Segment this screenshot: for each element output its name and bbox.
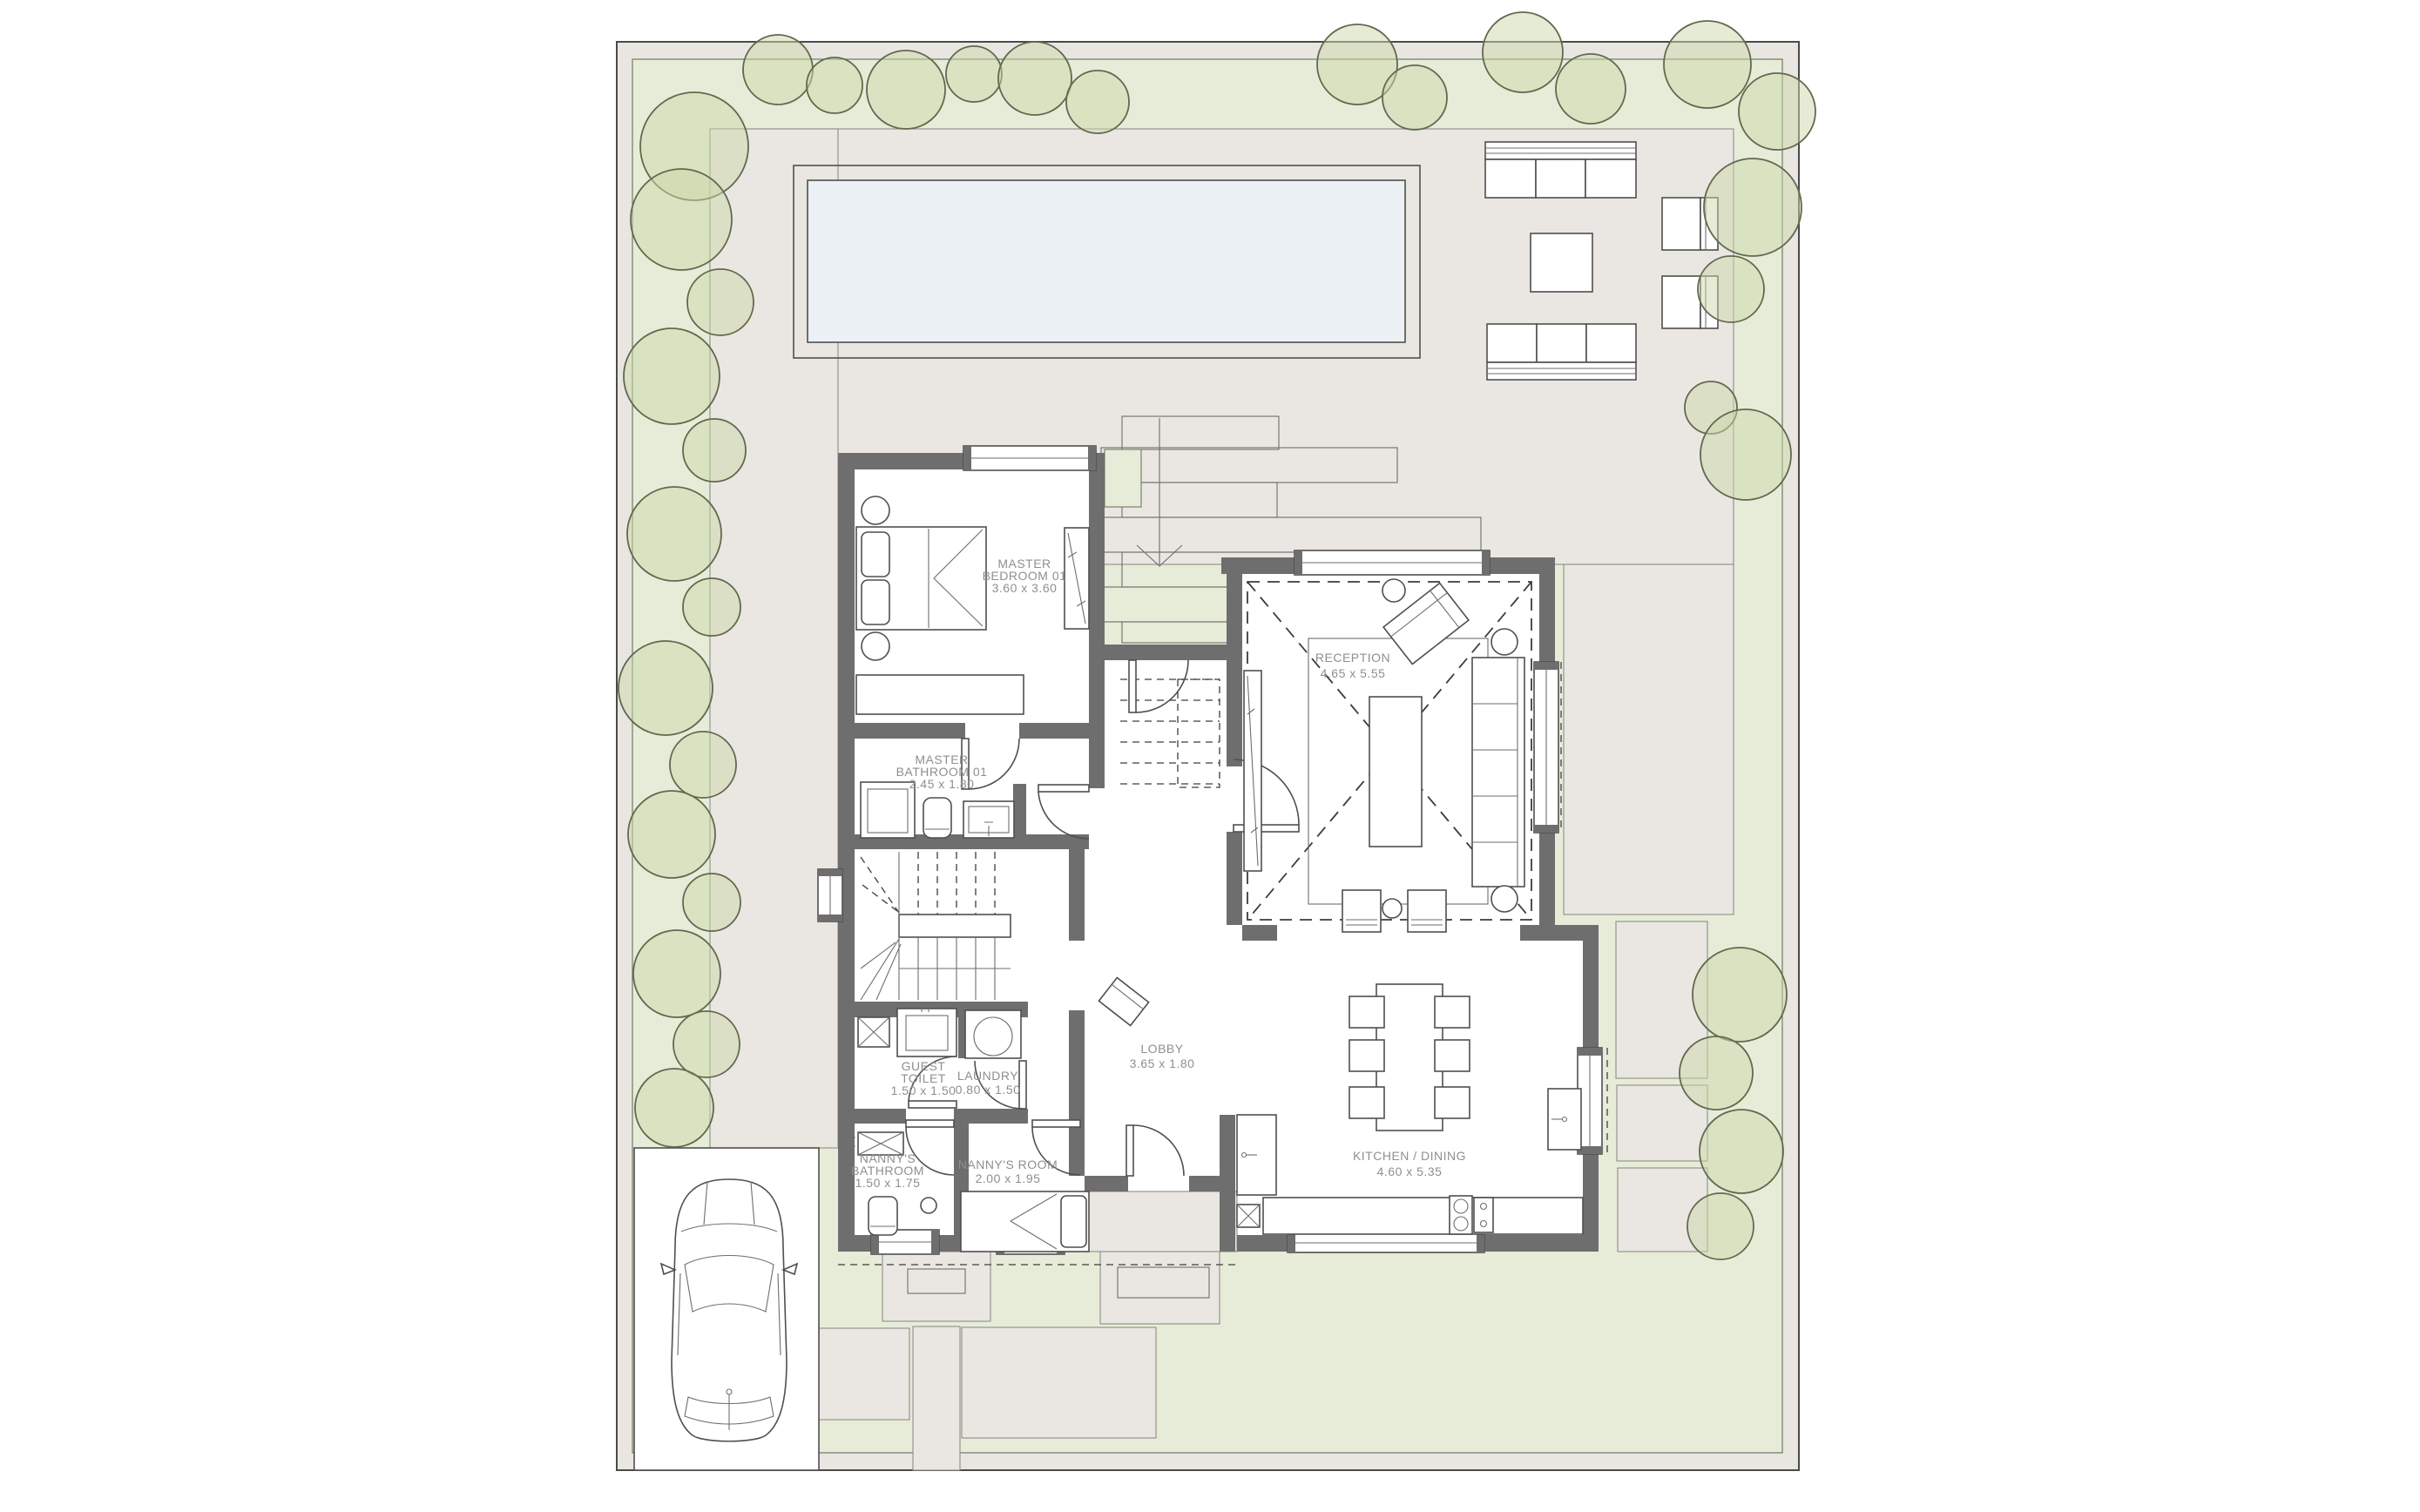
wardrobe [1065, 528, 1089, 629]
vanity-sink [861, 782, 915, 838]
tree-icon [807, 57, 862, 113]
entry-porch [1085, 1191, 1237, 1252]
tree-icon [1698, 256, 1764, 322]
tree-icon [998, 42, 1071, 115]
tree-icon [635, 1069, 713, 1147]
side-table [1491, 886, 1518, 912]
pillow [862, 532, 889, 577]
room-dims-kitchen-dining: 4.60 x 5.35 [1377, 1164, 1443, 1178]
room-dims-nannys-room: 2.00 x 1.95 [976, 1171, 1041, 1185]
tree-icon [670, 732, 736, 798]
entry-planter [1105, 449, 1141, 507]
pillow [1061, 1196, 1086, 1247]
sliding-door [1288, 1233, 1484, 1252]
armchair [1342, 890, 1381, 932]
side-table [862, 632, 889, 660]
room-label-lobby: LOBBY [1140, 1042, 1183, 1056]
console [1244, 671, 1261, 871]
armchair [1408, 890, 1446, 932]
vanity-sink [897, 1007, 957, 1056]
window [818, 869, 842, 921]
tree-icon [1700, 409, 1791, 500]
duct-shaft [858, 1017, 889, 1047]
room-dims-reception: 4.65 x 5.55 [1321, 666, 1386, 680]
side-table [1382, 579, 1405, 602]
side-table [862, 496, 889, 524]
washing-machine [965, 1010, 1021, 1058]
coffee-table [1531, 233, 1592, 292]
sink [921, 1198, 936, 1213]
tree-icon [743, 35, 813, 105]
dining-chair [1435, 1040, 1470, 1071]
stove [1450, 1196, 1493, 1234]
rear-step [882, 1252, 990, 1321]
entry-step [1100, 1252, 1220, 1324]
room-dims-master-bedroom: 3.60 x 3.60 [992, 581, 1058, 595]
dining-chair [1435, 996, 1470, 1028]
tree-icon [1066, 71, 1129, 133]
tree-icon [867, 51, 945, 129]
dining-chair [1349, 1040, 1384, 1071]
room-dims-lobby: 3.65 x 1.80 [1130, 1056, 1195, 1070]
room-dims-guest-toilet: 1.50 x 1.50 [891, 1083, 957, 1097]
tree-icon [946, 46, 1002, 102]
kitchen-sink [1237, 1205, 1260, 1227]
room-label-kitchen-dining: KITCHEN / DINING [1353, 1149, 1466, 1163]
pool [808, 180, 1405, 342]
side-table [1382, 899, 1402, 918]
tree-icon [673, 1011, 740, 1077]
tree-icon [1680, 1036, 1753, 1110]
floor-plan-canvas: MASTER BEDROOM 01 3.60 x 3.60 MASTER BAT… [0, 0, 2420, 1512]
tree-icon [624, 328, 720, 424]
side-table [1491, 629, 1518, 655]
tree-icon [619, 641, 713, 735]
coffee-table [1369, 697, 1422, 847]
room-dims-master-bathroom: 2.45 x 1.80 [909, 777, 975, 791]
window [963, 446, 1096, 470]
tree-icon [1693, 948, 1787, 1042]
patio-square [962, 1327, 1156, 1438]
tree-icon [1483, 12, 1563, 92]
room-label-nannys-room: NANNY'S ROOM [958, 1158, 1058, 1171]
dining-chair [1435, 1087, 1470, 1118]
car-top-view [661, 1179, 797, 1441]
tree-icon [1739, 73, 1815, 150]
tree-icon [1687, 1193, 1754, 1259]
toilet [869, 1197, 897, 1235]
window [1294, 550, 1490, 575]
room-label-laundry: LAUNDRY [957, 1069, 1018, 1083]
tree-icon [683, 874, 740, 931]
nannys-room-furniture [961, 1191, 1089, 1252]
shower [963, 801, 1014, 838]
tall-cabinet [1237, 1115, 1276, 1195]
tree-icon [631, 169, 732, 270]
room-dims-nannys-bathroom: 1.50 x 1.75 [855, 1176, 921, 1190]
tree-icon [687, 269, 754, 335]
tree-icon [1382, 65, 1447, 130]
room-label-reception: RECEPTION [1315, 651, 1390, 665]
tree-icon [633, 930, 720, 1017]
dresser [856, 675, 1024, 714]
tree-icon [627, 487, 721, 581]
toilet [923, 798, 951, 838]
window [1534, 662, 1558, 833]
tree-icon [1704, 159, 1801, 256]
garden-path [913, 1326, 960, 1470]
fridge [1548, 1089, 1581, 1150]
dining-chair [1349, 996, 1384, 1028]
tree-icon [683, 578, 740, 636]
tree-icon [628, 791, 715, 878]
dining-table [1376, 984, 1443, 1131]
pillow [862, 580, 889, 624]
tree-icon [683, 419, 746, 482]
tree-icon [1556, 54, 1626, 124]
tree-icon [1664, 21, 1751, 108]
dining-chair [1349, 1087, 1384, 1118]
tree-icon [1700, 1110, 1783, 1193]
kitchen-counter [1263, 1198, 1583, 1234]
room-dims-laundry: 0.80 x 1.50 [956, 1083, 1021, 1097]
sofa [1472, 658, 1524, 887]
